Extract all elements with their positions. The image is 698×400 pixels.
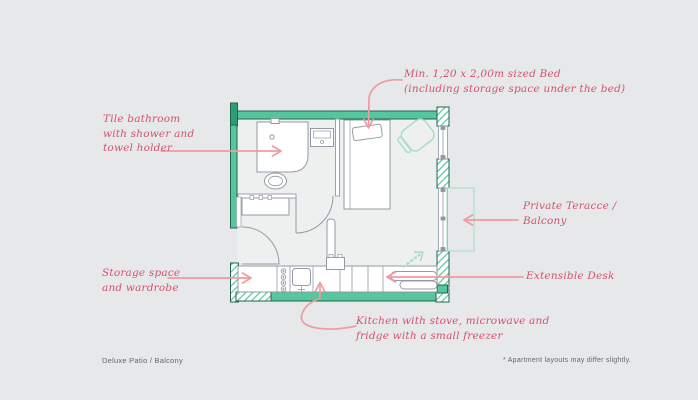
shower (257, 119, 308, 173)
bed (344, 120, 390, 209)
door-leaf-panel (327, 219, 335, 260)
annotation-kitchen: Kitchen with stove, microwave and fridge… (356, 314, 549, 343)
disclaimer-label: * Apartment layouts may differ slightly. (503, 357, 631, 364)
annotation-desk: Extensible Desk (526, 269, 615, 284)
window-panels (439, 126, 448, 251)
annotation-bathroom: Tile bathroom with shower and towel hold… (103, 112, 194, 156)
towel-radiator (242, 196, 289, 216)
plan-name-label: Deluxe Patio / Balcony (102, 356, 183, 365)
annotation-terrace: Private Teracce / Balcony (523, 199, 616, 228)
annotation-storage: Storage space and wardrobe (102, 266, 180, 295)
wash-basin-icon (311, 129, 334, 147)
annotation-bed: Min. 1,20 x 2,00m sized Bed (including s… (404, 67, 625, 96)
floorplan-canvas: Tile bathroom with shower and towel hold… (0, 0, 698, 400)
toilet (265, 173, 287, 189)
